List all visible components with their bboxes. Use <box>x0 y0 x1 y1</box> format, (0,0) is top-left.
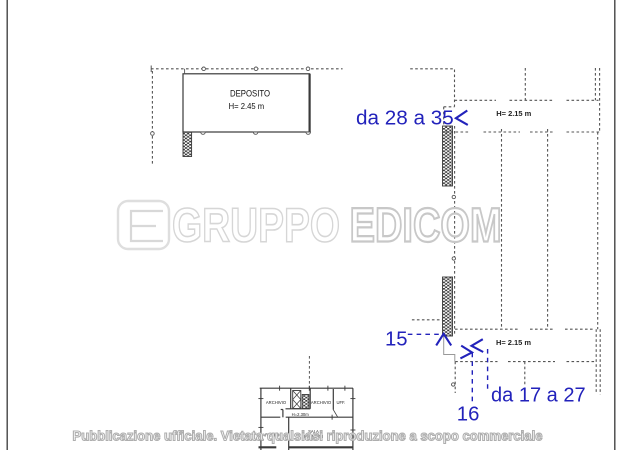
svg-text:H= 2.15 m: H= 2.15 m <box>496 338 531 347</box>
svg-text:ARCHIVIO: ARCHIVIO <box>311 400 332 405</box>
svg-text:15: 15 <box>385 329 408 351</box>
svg-text:da 17 a 27: da 17 a 27 <box>491 385 586 407</box>
svg-text:16: 16 <box>457 404 480 426</box>
svg-text:DEPOSITO: DEPOSITO <box>230 89 270 100</box>
svg-text:H= 2.15 m: H= 2.15 m <box>496 109 531 118</box>
svg-text:GRUPPO: GRUPPO <box>172 199 340 252</box>
svg-text:Pubblicazione ufficiale. Vieta: Pubblicazione ufficiale. Vietata qualsia… <box>73 429 543 444</box>
svg-text:H= 2.45 m: H= 2.45 m <box>229 101 265 111</box>
svg-text:EDICOM: EDICOM <box>350 199 502 252</box>
svg-text:da 28 a 35: da 28 a 35 <box>356 108 454 130</box>
svg-text:ARCHIVIO: ARCHIVIO <box>266 400 287 405</box>
svg-text:UFF.: UFF. <box>336 400 345 405</box>
svg-text:H=2.30m: H=2.30m <box>292 412 310 417</box>
